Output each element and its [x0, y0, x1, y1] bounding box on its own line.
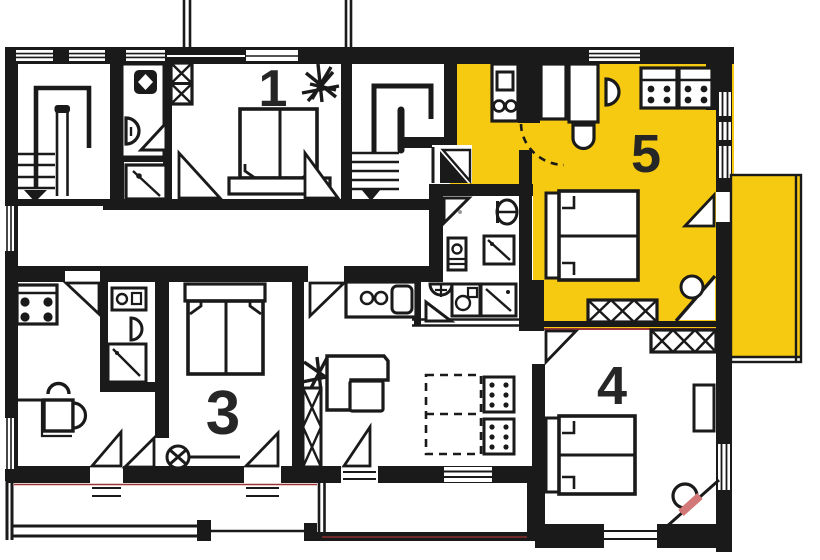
svg-text:5: 5	[631, 124, 661, 184]
svg-text:4: 4	[597, 356, 627, 416]
svg-text:3: 3	[206, 379, 240, 448]
svg-text:1: 1	[259, 60, 288, 118]
